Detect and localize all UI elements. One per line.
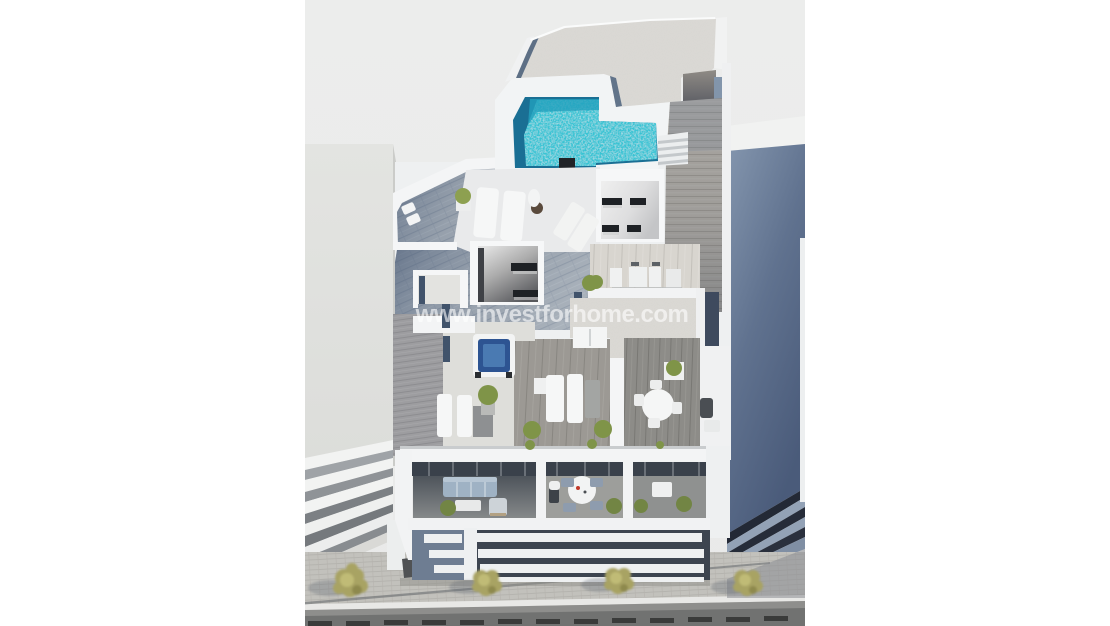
svg-text:www.investforhome.com: www.investforhome.com — [415, 301, 689, 328]
